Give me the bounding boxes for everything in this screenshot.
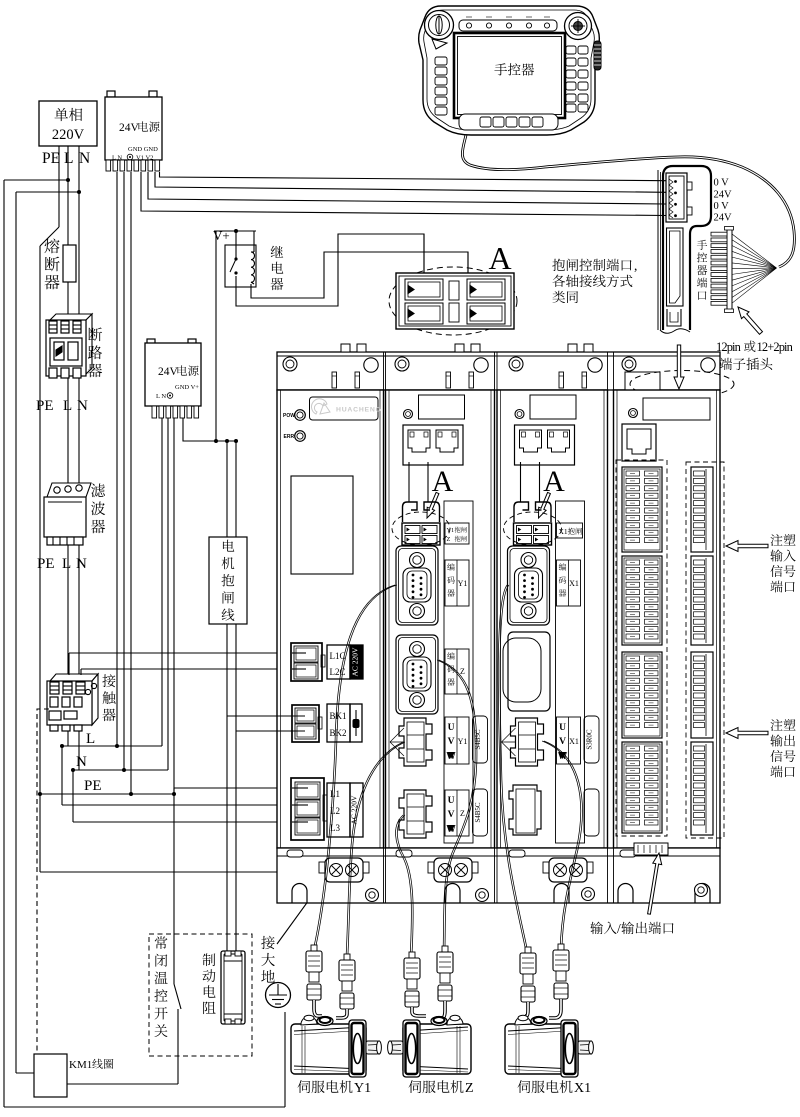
svg-text:A: A	[543, 465, 565, 498]
svg-text:L: L	[86, 731, 95, 747]
svg-text:,: ,	[634, 258, 637, 273]
svg-text:W: W	[446, 752, 456, 762]
svg-text:N: N	[76, 754, 87, 770]
svg-text:24V: 24V	[714, 213, 733, 224]
svg-text:220V: 220V	[52, 127, 85, 143]
svg-text:V: V	[448, 737, 455, 747]
svg-text:PE: PE	[36, 398, 54, 414]
svg-text:24V: 24V	[158, 366, 179, 378]
svg-text:0 V: 0 V	[714, 201, 730, 212]
svg-text:S3R0C: S3R0C	[586, 729, 594, 750]
svg-text:12+2pin: 12+2pin	[757, 340, 794, 354]
svg-text:GND GND: GND GND	[128, 146, 158, 153]
svg-text:Z: Z	[465, 1081, 474, 1096]
svg-text:V+: V+	[213, 228, 230, 243]
svg-text:Z: Z	[460, 809, 465, 818]
svg-text:N: N	[76, 556, 87, 572]
svg-text:AC 220V: AC 220V	[351, 647, 360, 677]
svg-text:Z: Z	[460, 667, 465, 676]
svg-text:HUACHENG: HUACHENG	[336, 407, 382, 414]
svg-text:Y1: Y1	[458, 737, 468, 746]
svg-text:L N: L N	[156, 393, 166, 400]
svg-text:/: /	[617, 921, 621, 936]
svg-text:POW: POW	[283, 413, 295, 419]
svg-text:L1: L1	[330, 789, 340, 799]
svg-text:GND V+: GND V+	[175, 384, 199, 391]
svg-text:N: N	[77, 398, 88, 414]
svg-text:Y1: Y1	[354, 1081, 371, 1096]
svg-text:AC 220V: AC 220V	[350, 795, 359, 825]
svg-text:24V: 24V	[714, 190, 733, 201]
svg-text:L: L	[63, 398, 72, 414]
svg-text:U: U	[448, 723, 455, 733]
svg-text:BK2: BK2	[330, 728, 347, 738]
svg-text:A: A	[432, 465, 454, 498]
svg-text:Z: Z	[447, 536, 451, 543]
svg-text:U: U	[559, 723, 566, 733]
svg-text:PE: PE	[42, 150, 60, 167]
svg-text:X1: X1	[559, 527, 568, 536]
svg-text:ERR: ERR	[284, 434, 295, 440]
svg-text:W: W	[446, 825, 456, 835]
svg-text:S4B5C: S4B5C	[474, 802, 482, 823]
svg-text:L: L	[62, 556, 71, 572]
svg-text:L: L	[64, 150, 73, 167]
svg-text:X1: X1	[574, 1081, 591, 1096]
svg-text:X1: X1	[569, 737, 579, 746]
svg-text:V: V	[559, 737, 566, 747]
svg-text:N: N	[79, 150, 90, 167]
svg-text:U: U	[448, 796, 455, 806]
svg-text:24V: 24V	[119, 122, 140, 134]
svg-text:KM1: KM1	[69, 1059, 92, 1071]
svg-text:V: V	[448, 810, 455, 820]
svg-text:0 V: 0 V	[714, 178, 730, 189]
svg-text:PE: PE	[84, 778, 102, 794]
svg-text:X1: X1	[569, 579, 579, 588]
svg-text:A: A	[488, 240, 511, 276]
svg-text:Y1: Y1	[458, 579, 468, 588]
svg-text:Y1: Y1	[447, 527, 455, 534]
svg-text:PE: PE	[37, 556, 55, 572]
